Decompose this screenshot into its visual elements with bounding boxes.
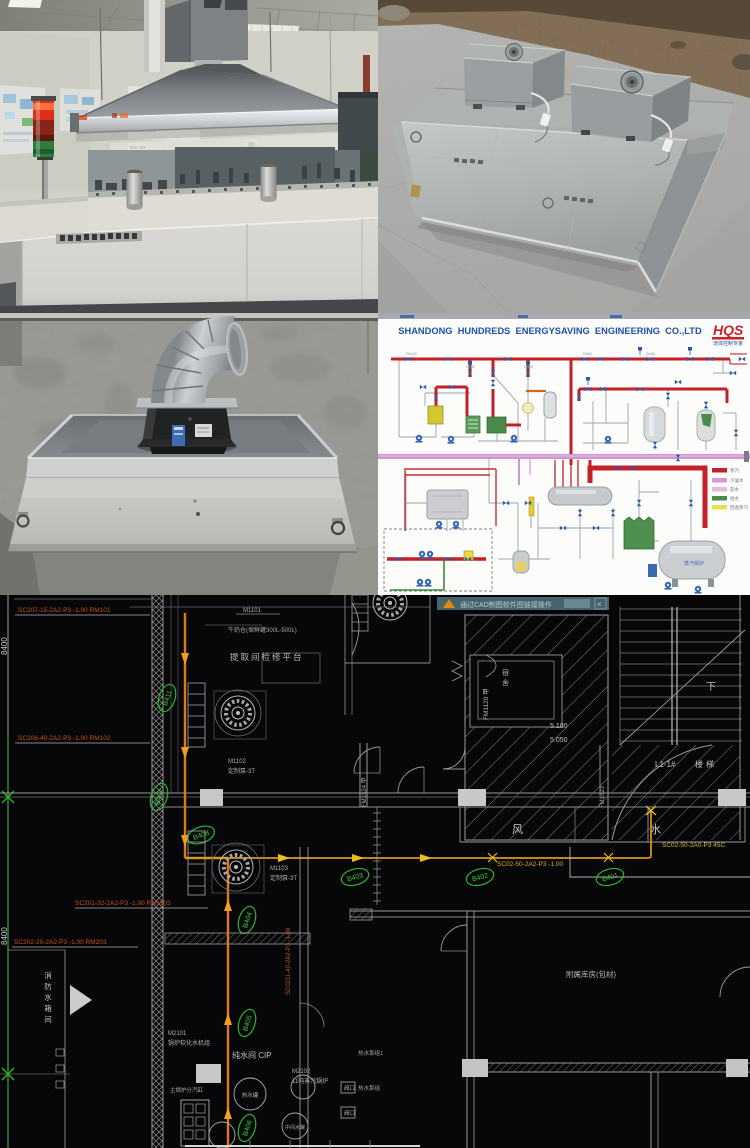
svg-text:SC02-50-2A2-P3 -1.00: SC02-50-2A2-P3 -1.00 bbox=[497, 861, 564, 868]
svg-text:M1101: M1101 bbox=[243, 608, 262, 614]
svg-text:阀口: 阀口 bbox=[344, 1109, 355, 1117]
svg-text:冷凝水: 冷凝水 bbox=[730, 477, 744, 484]
svg-text:牛奶仓(保鲜罐300L-500L): 牛奶仓(保鲜罐300L-500L) bbox=[228, 626, 297, 634]
svg-text:锅炉软化水机组: 锅炉软化水机组 bbox=[168, 1039, 210, 1047]
svg-text:回收蒸汽: 回收蒸汽 bbox=[730, 504, 748, 511]
svg-text:SC202-20-2A2-P3 -1.00 RM203: SC202-20-2A2-P3 -1.00 RM203 bbox=[14, 939, 107, 946]
svg-text:热水泵组: 热水泵组 bbox=[358, 1084, 381, 1092]
svg-text:热水泵组1: 热水泵组1 bbox=[358, 1049, 383, 1057]
svg-text:SC206-40-2A2-P3 -1.00 RM102: SC206-40-2A2-P3 -1.00 RM102 bbox=[18, 735, 111, 742]
svg-text:下: 下 bbox=[706, 682, 716, 693]
svg-text:11吨蒸汽锅炉: 11吨蒸汽锅炉 bbox=[292, 1077, 328, 1085]
svg-text:阀口: 阀口 bbox=[344, 1084, 355, 1092]
svg-text:舍: 舍 bbox=[502, 678, 509, 687]
svg-text:中间水罐: 中间水罐 bbox=[285, 1124, 305, 1131]
svg-text:定制泵-3T: 定制泵-3T bbox=[228, 767, 255, 775]
svg-text:蒸汽: 蒸汽 bbox=[730, 467, 739, 474]
svg-text:间: 间 bbox=[44, 1015, 52, 1024]
svg-text:8400: 8400 bbox=[0, 927, 9, 945]
svg-text:SC201-32-2A2-P3 -1.00 RM1103: SC201-32-2A2-P3 -1.00 RM1103 bbox=[75, 900, 171, 907]
svg-text:FM1120 甲: FM1120 甲 bbox=[482, 688, 490, 720]
svg-text:蒸汽锅炉: 蒸汽锅炉 bbox=[684, 560, 704, 567]
svg-text:8400: 8400 bbox=[0, 637, 9, 655]
svg-text:HQS: HQS bbox=[713, 322, 744, 338]
svg-text:软水: 软水 bbox=[730, 486, 739, 493]
svg-text:防: 防 bbox=[44, 981, 52, 991]
svg-text:SC207-15-2A2-P3 -1.00 RM101: SC207-15-2A2-P3 -1.00 RM101 bbox=[18, 607, 111, 614]
svg-text:M2102: M2102 bbox=[292, 1069, 311, 1075]
svg-text:DN100: DN100 bbox=[406, 352, 417, 356]
svg-text:给水: 给水 bbox=[730, 495, 739, 502]
svg-text:风: 风 bbox=[512, 823, 523, 836]
svg-text:宿: 宿 bbox=[502, 668, 509, 677]
svg-text:通过CAD制图软件图链接操作: 通过CAD制图软件图链接操作 bbox=[460, 600, 552, 609]
svg-text:箱: 箱 bbox=[44, 1003, 52, 1013]
svg-text:热水罐: 热水罐 bbox=[242, 1091, 259, 1099]
svg-text:SHANDONG HUNDREDS ENERGYSAVI: SHANDONG HUNDREDS ENERGYSAVING ENGINEERI… bbox=[398, 326, 702, 336]
svg-text:L1-1#: L1-1# bbox=[655, 760, 676, 769]
svg-text:水: 水 bbox=[44, 992, 52, 1002]
svg-text:FM1523: FM1523 bbox=[600, 785, 606, 808]
svg-text:定制泵-3T: 定制泵-3T bbox=[270, 874, 297, 882]
svg-text:M1103: M1103 bbox=[270, 866, 289, 872]
svg-text:×: × bbox=[597, 600, 602, 609]
svg-text:DN80: DN80 bbox=[583, 352, 592, 356]
svg-text:主锅炉分汽缸: 主锅炉分汽缸 bbox=[170, 1086, 204, 1094]
svg-text:M2101: M2101 bbox=[168, 1031, 187, 1037]
svg-text:DN50: DN50 bbox=[466, 365, 475, 369]
svg-text:附属库房(包材): 附属库房(包材) bbox=[566, 969, 616, 979]
svg-text:纯水间 CIP: 纯水间 CIP bbox=[232, 1050, 272, 1060]
svg-text:消: 消 bbox=[44, 970, 52, 980]
svg-text:5.100: 5.100 bbox=[550, 723, 568, 730]
svg-text:5.050: 5.050 bbox=[550, 737, 568, 744]
svg-text:提取间检修平台: 提取间检修平台 bbox=[230, 652, 304, 662]
svg-text:流体控制专家: 流体控制专家 bbox=[713, 340, 743, 347]
svg-text:DN40: DN40 bbox=[524, 365, 533, 369]
svg-text:楼梯: 楼梯 bbox=[695, 759, 717, 769]
svg-text:DN65: DN65 bbox=[646, 352, 655, 356]
svg-text:SC02-50-2A0-P3 45C: SC02-50-2A0-P3 45C bbox=[662, 842, 726, 849]
svg-text:M1102: M1102 bbox=[228, 759, 247, 765]
